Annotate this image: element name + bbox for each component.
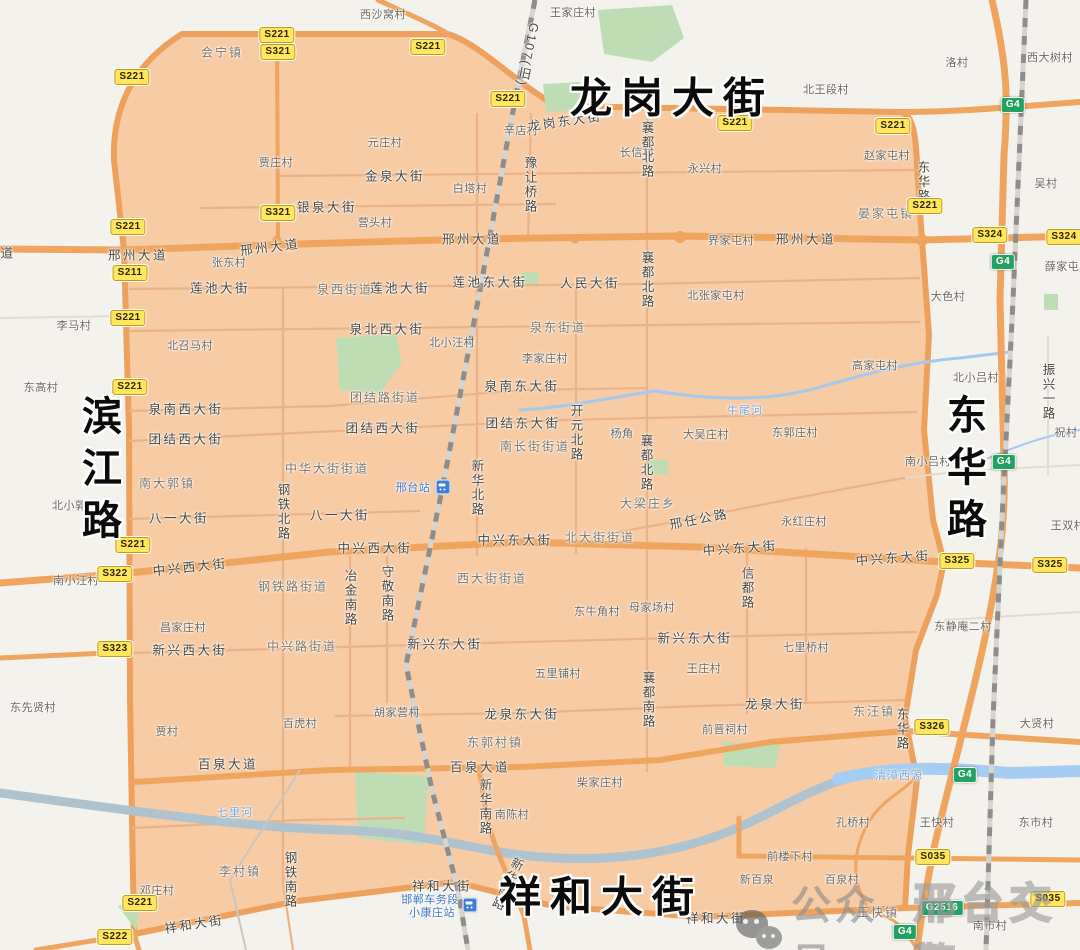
village-label: 营头村 — [358, 214, 393, 230]
road-label: 新兴东大街 — [407, 634, 482, 653]
road-label: 团结西大街 — [148, 429, 223, 448]
village-label: 七里桥村 — [783, 639, 829, 655]
road-label: 银泉大街 — [297, 197, 357, 216]
road-label: 新兴东大街 — [657, 628, 732, 647]
village-label: 北张家屯村 — [687, 287, 745, 303]
provincial-route-shield: S221 — [490, 91, 525, 107]
village-label: 薛家屯 — [1045, 258, 1080, 274]
village-label: 高家屯村 — [852, 357, 898, 373]
national-route-shield: G4 — [992, 454, 1016, 470]
road-label-vertical: 豫让桥路 — [521, 156, 540, 214]
village-label: 北王段村 — [803, 81, 849, 97]
road-label: 莲池大街 — [190, 278, 250, 297]
river-label: 七里河 — [217, 804, 253, 820]
provincial-route-shield: S221 — [259, 27, 294, 43]
watermark-prefix: 公众号 — [791, 873, 905, 950]
village-label: 界家屯村 — [708, 232, 754, 248]
zone-boundary-street-label: 龙岗大街 — [570, 65, 774, 126]
watermark: 公众号 邢台交警 — [736, 870, 1080, 950]
road-label-vertical: 振兴一路 — [1039, 363, 1058, 421]
district-label: 团结路街道 — [350, 389, 420, 406]
road-label: 邢州大道 — [442, 229, 502, 248]
provincial-route-shield: S221 — [112, 379, 147, 395]
village-label: 赵家屯村 — [864, 147, 910, 163]
road-label: 团结西大街 — [345, 418, 420, 437]
village-label: 北小汪村 — [429, 334, 475, 350]
district-label: 西大街街道 — [457, 570, 527, 587]
station-label: 邢台站 — [396, 479, 431, 495]
provincial-route-shield: S221 — [122, 895, 157, 911]
district-label: 李村镇 — [219, 863, 261, 880]
village-label: 永红庄村 — [781, 513, 827, 529]
district-label: 大梁庄乡 — [620, 495, 676, 512]
village-label: 洛村 — [946, 54, 969, 70]
provincial-route-shield: S035 — [915, 849, 950, 865]
provincial-route-shield: S322 — [97, 566, 132, 582]
road-label: 泉南东大街 — [484, 376, 559, 395]
provincial-route-shield: S221 — [875, 118, 910, 134]
road-label: 新兴西大街 — [152, 640, 227, 659]
village-label: 白塔村 — [453, 180, 488, 196]
road-label-vertical: 襄都南路 — [639, 671, 658, 729]
road-label: 百泉大道 — [198, 754, 258, 773]
provincial-route-shield: S221 — [110, 219, 145, 235]
road-label-vertical: 钢铁北路 — [274, 483, 293, 541]
village-label: 大色村 — [931, 288, 966, 304]
district-label: 北大街街道 — [565, 529, 635, 546]
zone-boundary-street-label: 祥和大街 — [499, 864, 703, 925]
provincial-route-shield: S221 — [110, 310, 145, 326]
road-label: 中兴西大街 — [337, 538, 412, 557]
village-label: 西大树村 — [1027, 49, 1073, 65]
road-label: 邢州大道 — [108, 245, 168, 264]
village-label: 五里铺村 — [535, 665, 581, 681]
road-label: 莲池东大街 — [452, 272, 527, 291]
provincial-route-shield: S321 — [260, 44, 295, 60]
village-label: 昌家庄村 — [160, 619, 206, 635]
train-station-icon — [463, 898, 478, 913]
provincial-route-shield: S221 — [907, 198, 942, 214]
village-label: 孔桥村 — [836, 814, 871, 830]
road-label: 八一大街 — [149, 508, 209, 527]
road-label-vertical: 信都路 — [738, 566, 757, 610]
road-label: 龙泉东大街 — [484, 704, 559, 723]
village-label: 王快村 — [920, 814, 955, 830]
district-label: 中华大街街道 — [285, 460, 369, 477]
national-route-shield: G4 — [1001, 97, 1025, 113]
village-label: 前晋祠村 — [702, 721, 748, 737]
village-label: 南小汪村 — [53, 572, 99, 588]
provincial-route-shield: S326 — [914, 719, 949, 735]
provincial-route-shield: S324 — [1046, 229, 1080, 245]
provincial-route-shield: S221 — [410, 39, 445, 55]
road-label-vertical: 开元北路 — [567, 404, 586, 462]
district-label: 南长街街道 — [500, 438, 570, 455]
district-label: 东郭村镇 — [467, 734, 523, 751]
village-label: 吴村 — [1035, 175, 1058, 191]
provincial-route-shield: S324 — [972, 227, 1007, 243]
provincial-route-shield: S325 — [1032, 557, 1067, 573]
village-label: 前楼下村 — [767, 848, 813, 864]
provincial-route-shield: S323 — [97, 641, 132, 657]
river-label: 牛尾河 — [727, 402, 763, 418]
road-label-vertical: 东华路 — [893, 707, 912, 751]
district-label: 泉西街道 — [317, 281, 373, 298]
provincial-route-shield: S221 — [114, 69, 149, 85]
zone-boundary-street-label: 滨江路 — [69, 395, 127, 551]
village-label: 东高村 — [24, 379, 59, 395]
road-label: 泉南西大街 — [148, 399, 223, 418]
road-label: 邢州大道 — [776, 229, 836, 248]
road-label: 中兴东大街 — [477, 530, 552, 549]
village-label: 东先贤村 — [10, 699, 56, 715]
road-label-vertical: 冶金南路 — [341, 569, 360, 627]
traffic-restriction-zone-map: 龙岗大街滨江路东华路祥和大街西沙窝村王家庄村元庄村贾庄村白塔村辛店村长信村永兴村… — [0, 0, 1080, 950]
village-label: 祝村 — [1055, 424, 1078, 440]
village-label: 百虎村 — [283, 715, 318, 731]
river-label: 清漳西源 — [875, 767, 923, 783]
village-label: 永兴村 — [688, 160, 723, 176]
district-label: 南大郭镇 — [139, 475, 195, 492]
zone-boundary-street-label: 东华路 — [934, 394, 992, 550]
road-label-vertical: 新华南路 — [476, 778, 495, 836]
provincial-route-shield: S211 — [113, 265, 148, 281]
village-label: 东牛角村 — [574, 603, 620, 619]
village-label: 贾庄村 — [259, 154, 294, 170]
station-label: 小康庄站 — [409, 904, 455, 920]
road-label-vertical: 钢铁南路 — [281, 851, 300, 909]
village-label: 柴家庄村 — [577, 774, 623, 790]
road-label: 金泉大街 — [365, 166, 425, 185]
village-label: 南陈村 — [495, 806, 530, 822]
village-label: 胡家营村 — [374, 704, 420, 720]
road-label: 团结东大街 — [485, 413, 560, 432]
village-label: 李家庄村 — [522, 350, 568, 366]
road-label-vertical: 襄都北路 — [638, 251, 657, 309]
village-label: 王庄村 — [687, 660, 722, 676]
train-station-icon — [436, 480, 451, 495]
road-label-vertical: 襄都北路 — [638, 121, 657, 179]
district-label: 晏家屯镇 — [858, 205, 914, 222]
road-label: 人民大街 — [560, 273, 620, 292]
road-label: 道 — [0, 243, 15, 262]
village-label: 北小吕村 — [953, 369, 999, 385]
village-label: 大贤村 — [1020, 715, 1055, 731]
provincial-route-shield: S321 — [260, 205, 295, 221]
village-label: 王双村 — [1051, 517, 1080, 533]
national-route-shield: G4 — [953, 767, 977, 783]
road-label: 龙泉大街 — [745, 694, 805, 713]
village-label: 大吴庄村 — [683, 426, 729, 442]
road-label: 莲池大街 — [370, 278, 430, 297]
village-label: 北召马村 — [167, 337, 213, 353]
national-route-shield: G4 — [991, 254, 1015, 270]
road-label-vertical: 襄都北路 — [637, 434, 656, 492]
road-label-vertical: 守敬南路 — [378, 565, 397, 623]
provincial-route-shield: S222 — [97, 929, 132, 945]
watermark-account: 邢台交警 — [914, 870, 1080, 950]
village-label: 东静庵二村 — [934, 618, 992, 634]
road-label-vertical: 新华北路 — [468, 459, 487, 517]
village-label: 王家庄村 — [550, 4, 596, 20]
village-label: 元庄村 — [368, 134, 403, 150]
provincial-route-shield: S325 — [939, 553, 974, 569]
district-label: 中兴路街道 — [267, 638, 337, 655]
wechat-icon — [736, 908, 781, 950]
district-label: 会宁镇 — [201, 44, 243, 61]
road-label: 泉北西大街 — [349, 319, 424, 338]
village-label: 东市村 — [1019, 814, 1054, 830]
village-label: 西沙窝村 — [360, 6, 406, 22]
village-label: 贾村 — [156, 723, 179, 739]
road-label: 八一大街 — [310, 505, 370, 524]
village-label: 杨角 — [611, 425, 634, 441]
road-label: 百泉大道 — [450, 757, 510, 776]
village-label: 李马村 — [57, 317, 92, 333]
district-label: 泉东街道 — [530, 319, 586, 336]
village-label: 母家场村 — [629, 599, 675, 615]
district-label: 东汪镇 — [853, 703, 895, 720]
district-label: 钢铁路街道 — [258, 578, 328, 595]
village-label: 东郭庄村 — [772, 424, 818, 440]
